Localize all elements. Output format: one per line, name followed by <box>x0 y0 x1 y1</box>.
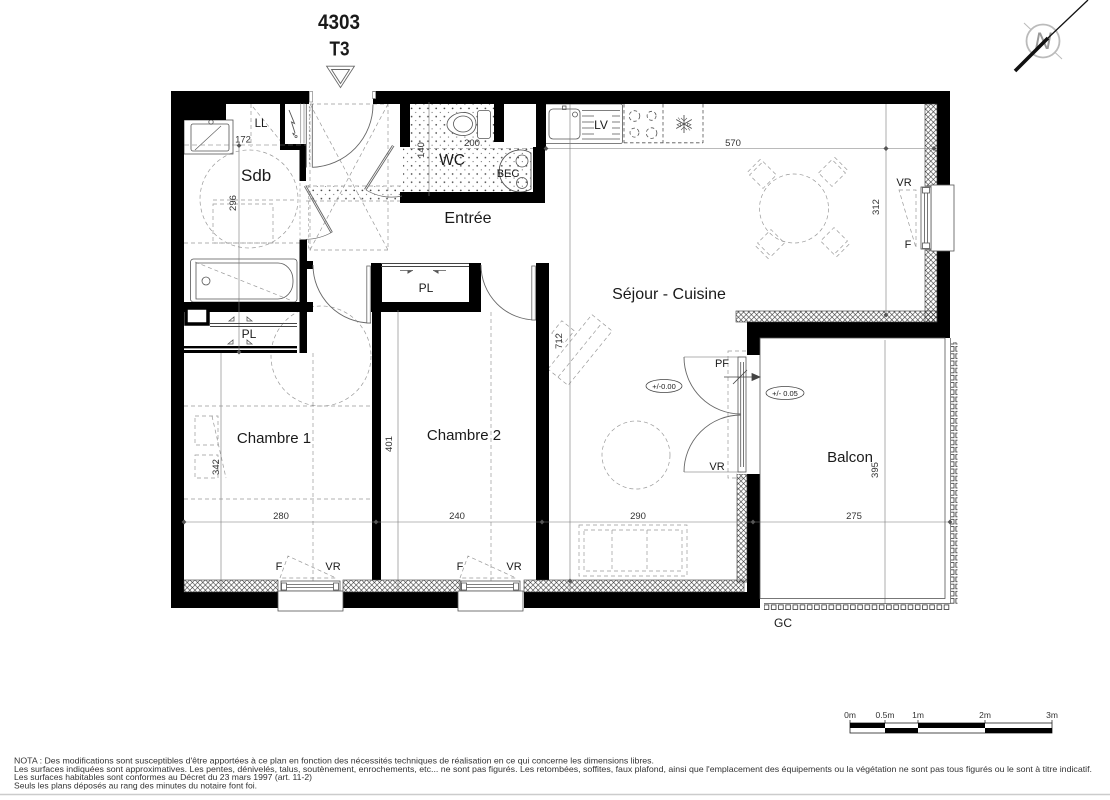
svg-text:Entrée: Entrée <box>444 210 491 227</box>
svg-text:F: F <box>457 561 464 573</box>
svg-text:712: 712 <box>554 333 565 349</box>
svg-text:Seuls les plans déposés au ran: Seuls les plans déposés au rang des minu… <box>14 782 257 791</box>
svg-text:LL: LL <box>255 118 268 130</box>
svg-text:140: 140 <box>416 142 427 158</box>
svg-text:240: 240 <box>449 511 465 522</box>
svg-text:1m: 1m <box>912 710 924 720</box>
svg-text:342: 342 <box>211 459 222 475</box>
svg-text:0m: 0m <box>844 710 856 720</box>
svg-text:Balcon: Balcon <box>827 449 873 466</box>
svg-text:VR: VR <box>709 461 724 473</box>
svg-text:F: F <box>905 239 912 251</box>
svg-text:200: 200 <box>464 138 480 149</box>
svg-text:401: 401 <box>384 436 395 452</box>
svg-text:GC: GC <box>774 616 792 630</box>
svg-text:275: 275 <box>846 511 862 522</box>
svg-text:280: 280 <box>273 511 289 522</box>
svg-text:395: 395 <box>870 462 881 478</box>
svg-text:0.5m: 0.5m <box>876 710 895 720</box>
svg-text:2m: 2m <box>979 710 991 720</box>
svg-text:PL: PL <box>242 327 257 341</box>
svg-text:VR: VR <box>506 561 521 573</box>
svg-text:172: 172 <box>235 135 251 146</box>
svg-text:Séjour - Cuisine: Séjour - Cuisine <box>612 286 726 303</box>
svg-text:WC: WC <box>439 152 465 169</box>
svg-text:F: F <box>276 561 283 573</box>
svg-text:3m: 3m <box>1046 710 1058 720</box>
svg-text:Chambre 1: Chambre 1 <box>237 430 311 447</box>
svg-text:VR: VR <box>325 561 340 573</box>
svg-text:4303: 4303 <box>318 10 360 34</box>
svg-text:VR: VR <box>896 177 911 189</box>
svg-text:+/- 0.05: +/- 0.05 <box>772 389 798 398</box>
svg-text:312: 312 <box>871 199 882 215</box>
svg-text:Sdb: Sdb <box>241 166 271 185</box>
svg-text:BEC: BEC <box>497 168 520 180</box>
svg-text:T3: T3 <box>330 39 350 61</box>
svg-text:LV: LV <box>594 118 608 132</box>
svg-text:+/-0.00: +/-0.00 <box>652 382 676 391</box>
svg-text:296: 296 <box>228 195 239 211</box>
svg-text:Chambre 2: Chambre 2 <box>427 427 501 444</box>
svg-text:570: 570 <box>725 138 741 149</box>
svg-text:290: 290 <box>630 511 646 522</box>
svg-text:PL: PL <box>419 281 434 295</box>
svg-text:PF: PF <box>715 358 729 370</box>
